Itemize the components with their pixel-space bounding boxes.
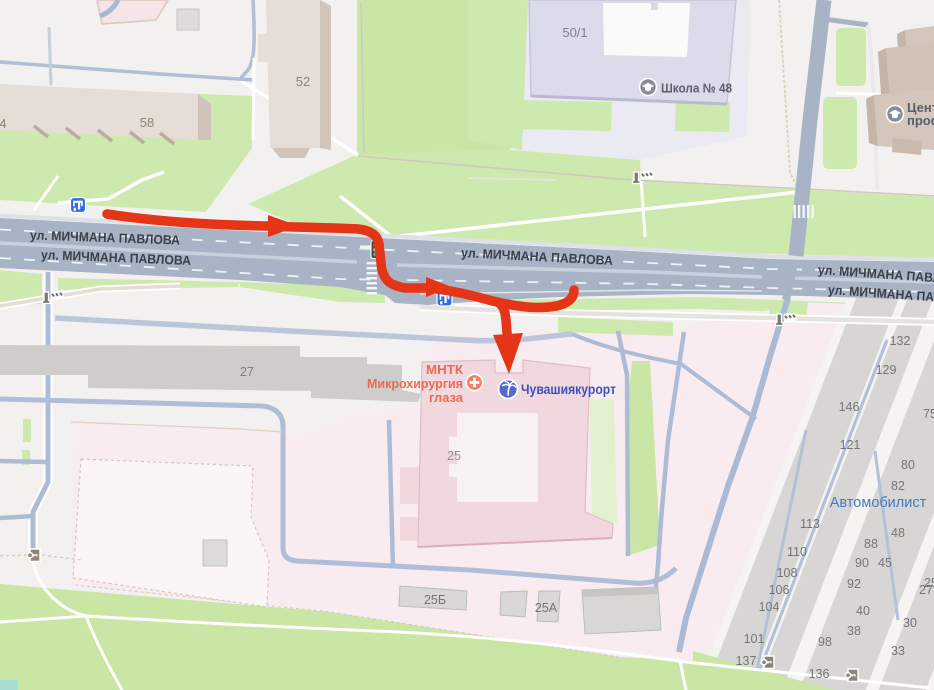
svg-text:82: 82 bbox=[891, 479, 905, 493]
svg-text:101: 101 bbox=[744, 632, 765, 646]
svg-text:106: 106 bbox=[769, 583, 790, 597]
svg-text:52: 52 bbox=[296, 74, 310, 89]
svg-text:Чувашиякурорт: Чувашиякурорт bbox=[521, 382, 616, 397]
svg-text:121: 121 bbox=[840, 438, 861, 452]
svg-text:Автомобилист: Автомобилист bbox=[830, 495, 927, 511]
svg-text:104: 104 bbox=[759, 600, 780, 614]
svg-text:48: 48 bbox=[891, 526, 905, 540]
svg-text:27: 27 bbox=[240, 365, 254, 379]
svg-text:88: 88 bbox=[864, 537, 878, 551]
svg-text:108: 108 bbox=[777, 566, 798, 580]
svg-text:90: 90 bbox=[855, 556, 869, 570]
svg-text:136: 136 bbox=[809, 667, 830, 681]
svg-text:38: 38 bbox=[847, 624, 861, 638]
svg-text:80: 80 bbox=[901, 458, 915, 472]
svg-text:25Б: 25Б bbox=[424, 593, 446, 607]
svg-text:Школа № 48: Школа № 48 bbox=[661, 81, 732, 96]
svg-text:25А: 25А bbox=[535, 601, 558, 615]
svg-text:98: 98 bbox=[818, 635, 832, 649]
svg-text:129: 129 bbox=[876, 363, 897, 377]
svg-text:глаза: глаза bbox=[429, 390, 464, 405]
svg-text:92: 92 bbox=[847, 577, 861, 591]
svg-text:146: 146 bbox=[839, 400, 860, 414]
svg-text:132: 132 bbox=[890, 334, 911, 348]
svg-text:27: 27 bbox=[919, 583, 933, 597]
svg-text:137: 137 bbox=[736, 654, 757, 668]
svg-text:40: 40 bbox=[856, 604, 870, 618]
svg-text:113: 113 bbox=[800, 517, 820, 531]
svg-text:МНТК: МНТК bbox=[426, 362, 463, 377]
svg-text:Микрохирургия: Микрохирургия bbox=[367, 376, 463, 391]
svg-text:профо: профо bbox=[907, 113, 934, 128]
svg-text:50/1: 50/1 bbox=[562, 25, 587, 40]
svg-text:4: 4 bbox=[0, 116, 7, 131]
svg-text:58: 58 bbox=[140, 115, 154, 130]
svg-text:45: 45 bbox=[878, 556, 892, 570]
svg-text:110: 110 bbox=[787, 545, 807, 559]
svg-text:33: 33 bbox=[891, 644, 905, 658]
svg-text:75: 75 bbox=[923, 407, 934, 421]
svg-text:30: 30 bbox=[903, 616, 917, 630]
svg-text:25: 25 bbox=[447, 449, 461, 463]
